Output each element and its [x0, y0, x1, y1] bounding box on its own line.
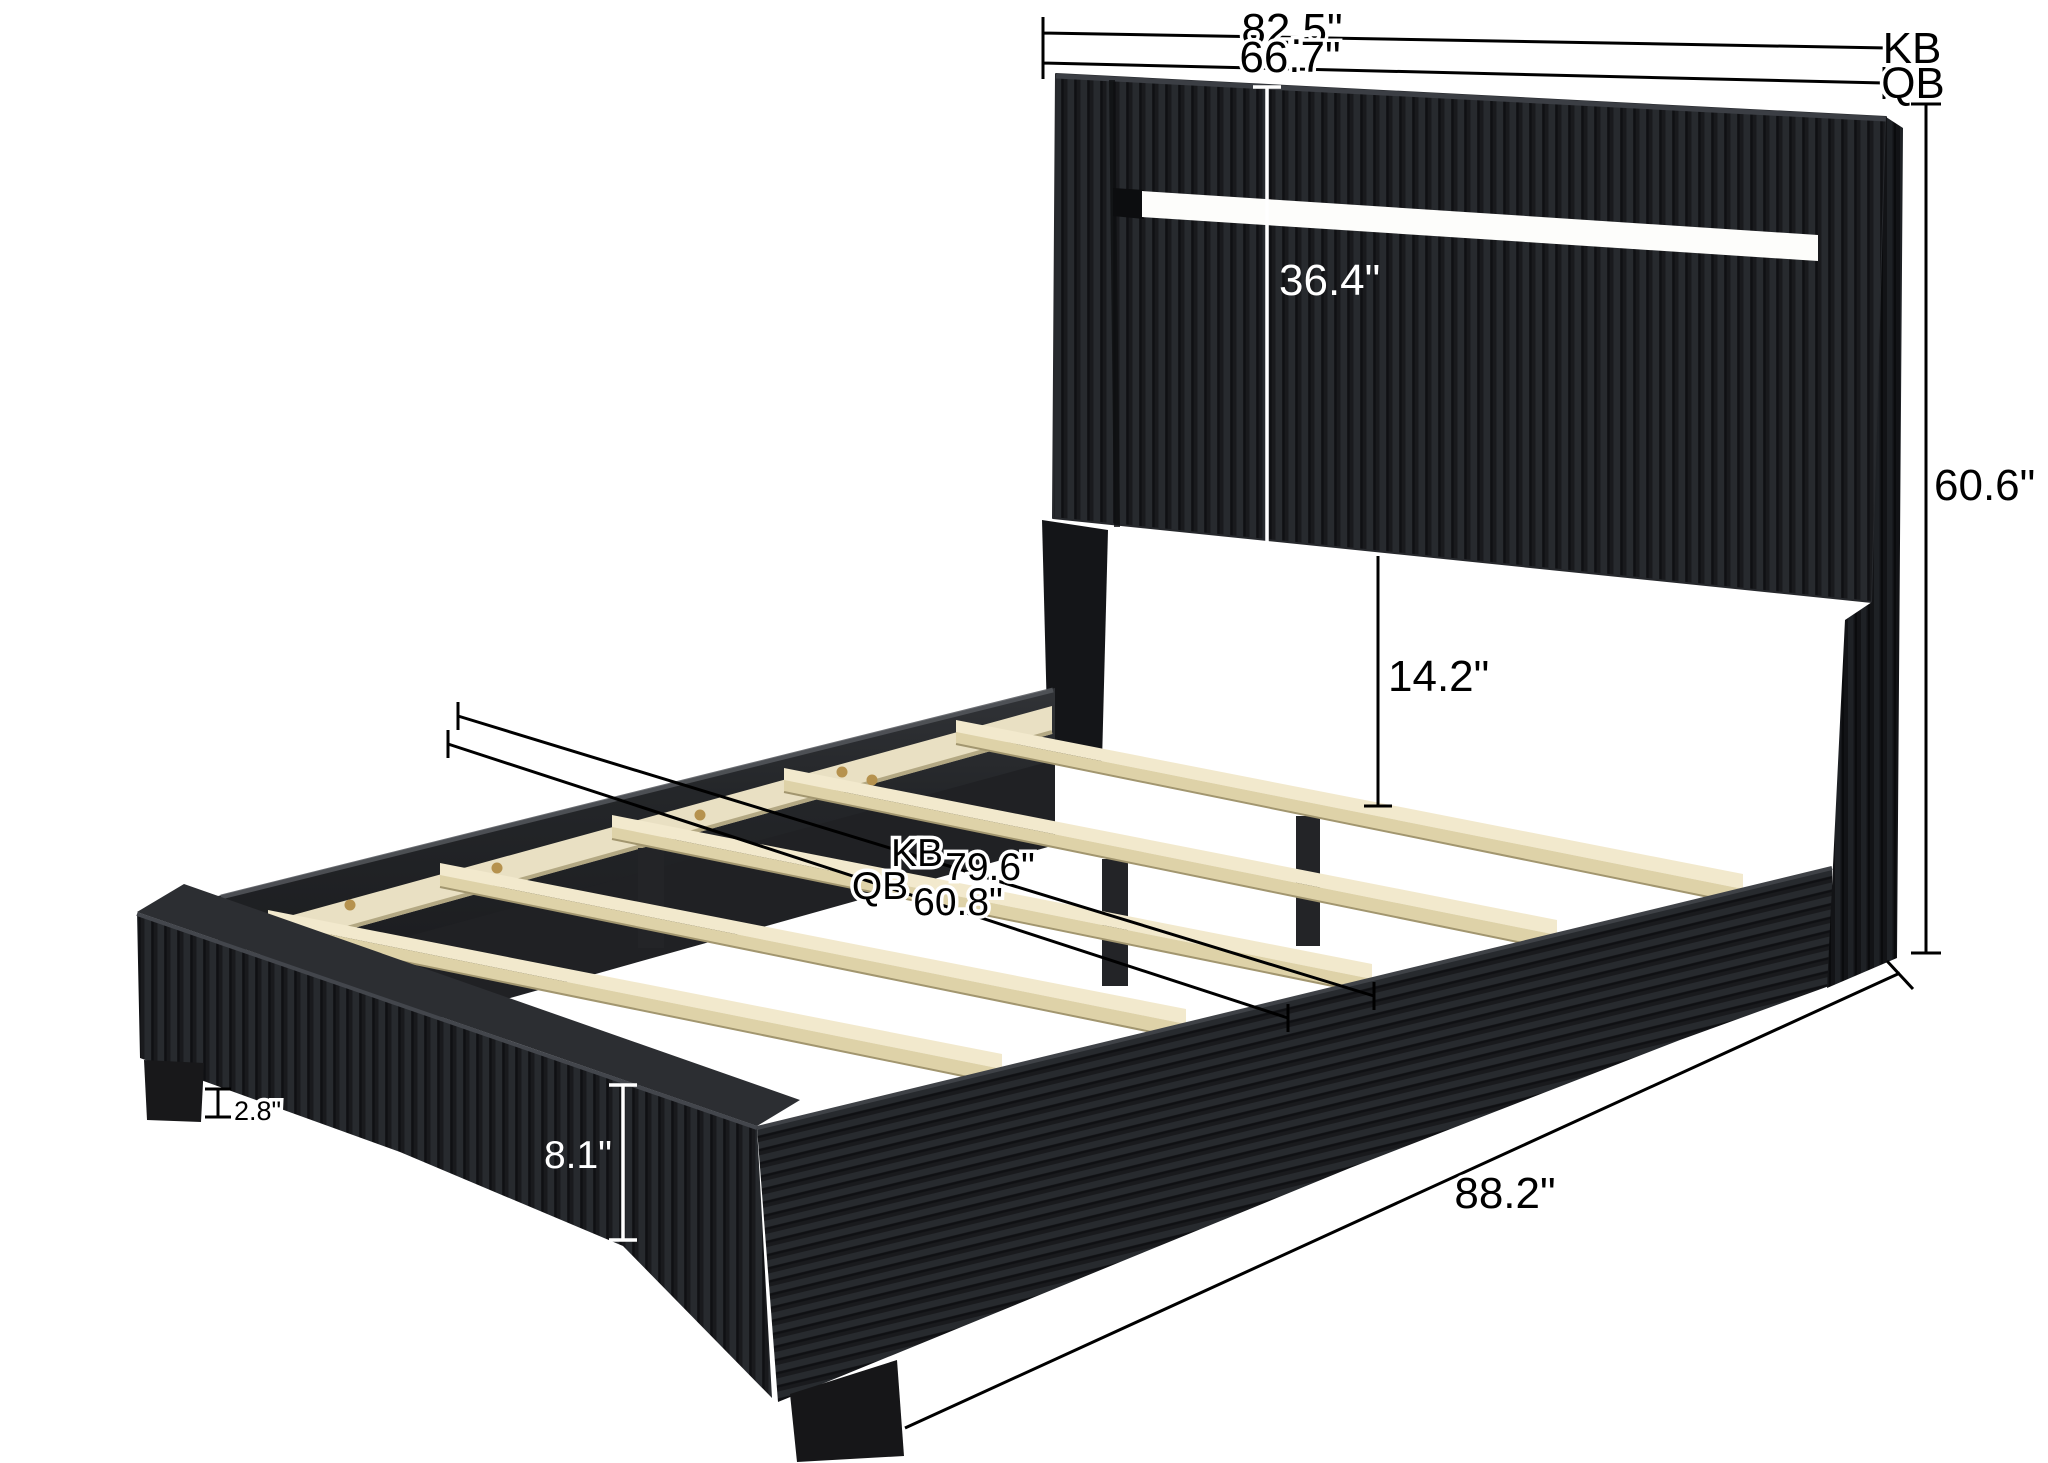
dim-interior-length-queen-value: 60.8"	[913, 881, 1003, 924]
dim-headboard-gap-value: 14.2"	[1388, 652, 1489, 701]
headboard	[1053, 74, 1886, 602]
led-strip-groove	[1113, 188, 1144, 219]
dim-leg-height-value: 2.8"	[234, 1096, 281, 1126]
dim-interior-length-queen-size-label: QB	[852, 865, 908, 908]
dim-overall-height-value: 60.6"	[1934, 461, 2035, 510]
dim-headboard-panel-height-value: 36.4"	[1279, 256, 1380, 305]
product-diagram: 82.5" KB 66.7" QB 36.4" 14.2" 60.6" KB 7…	[0, 0, 2048, 1463]
dim-rail-height-value: 8.1"	[544, 1134, 612, 1177]
dim-width-queen-value: 66.7"	[1239, 33, 1340, 82]
dim-overall-length-value: 88.2"	[1454, 1169, 1555, 1218]
footboard-far-foot	[144, 1060, 204, 1122]
dim-width-queen-size-label: QB	[1881, 59, 1945, 108]
